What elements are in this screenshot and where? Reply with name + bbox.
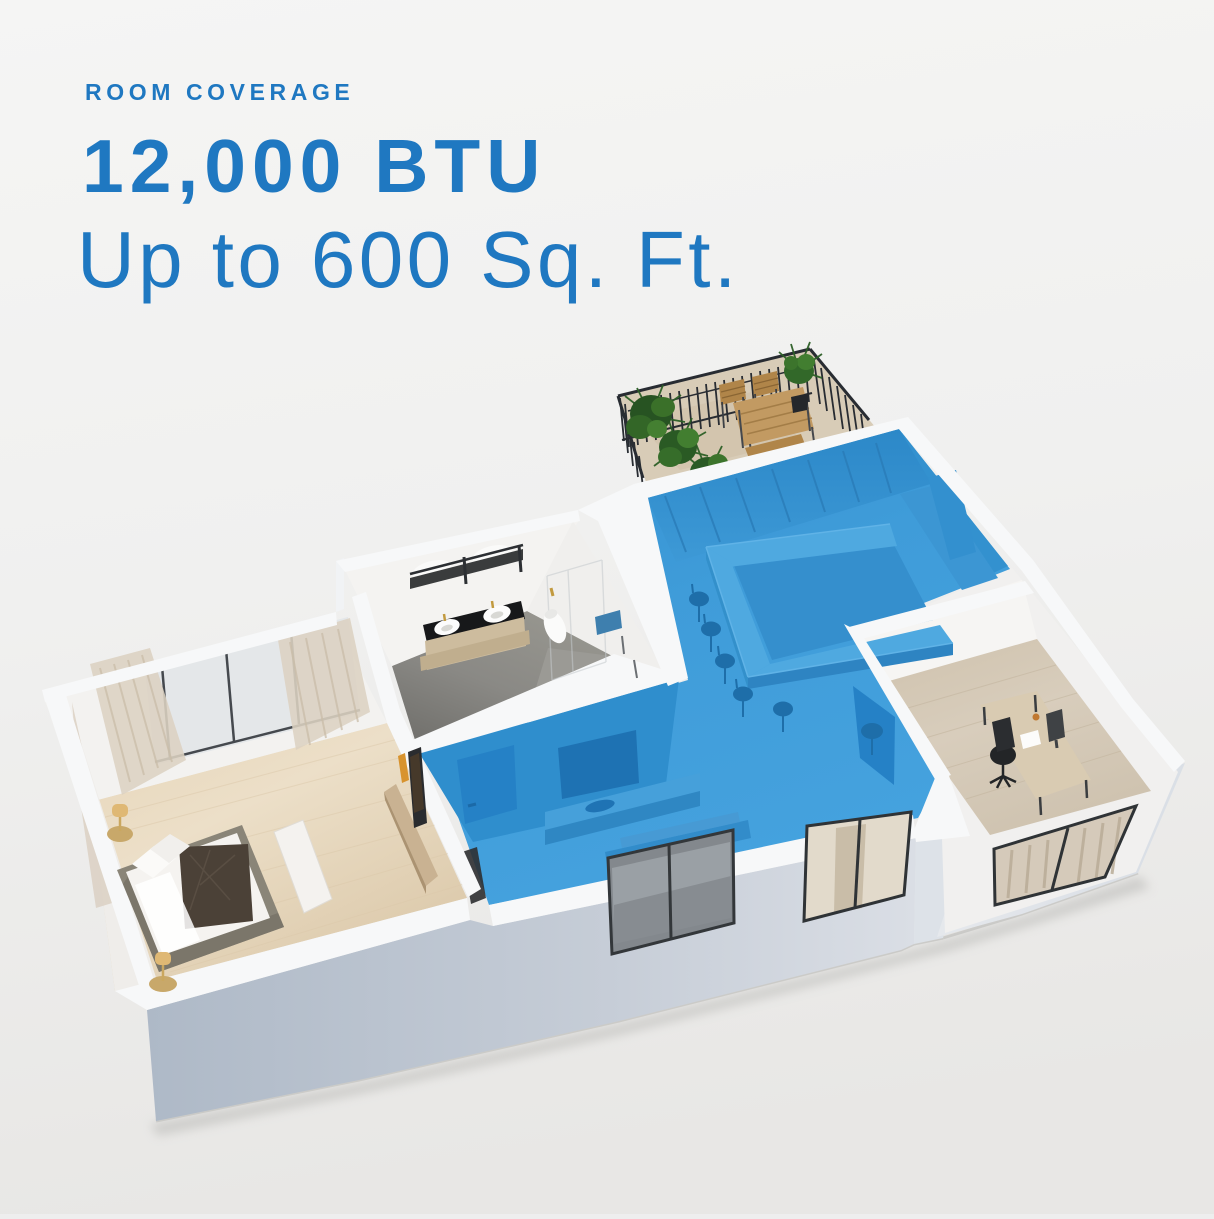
svg-text:ROOM COVERAGE: ROOM COVERAGE [85, 79, 354, 105]
svg-text:Up to 600 Sq. Ft.: Up to 600 Sq. Ft. [77, 215, 740, 304]
svg-text:12,000 BTU: 12,000 BTU [82, 124, 546, 208]
